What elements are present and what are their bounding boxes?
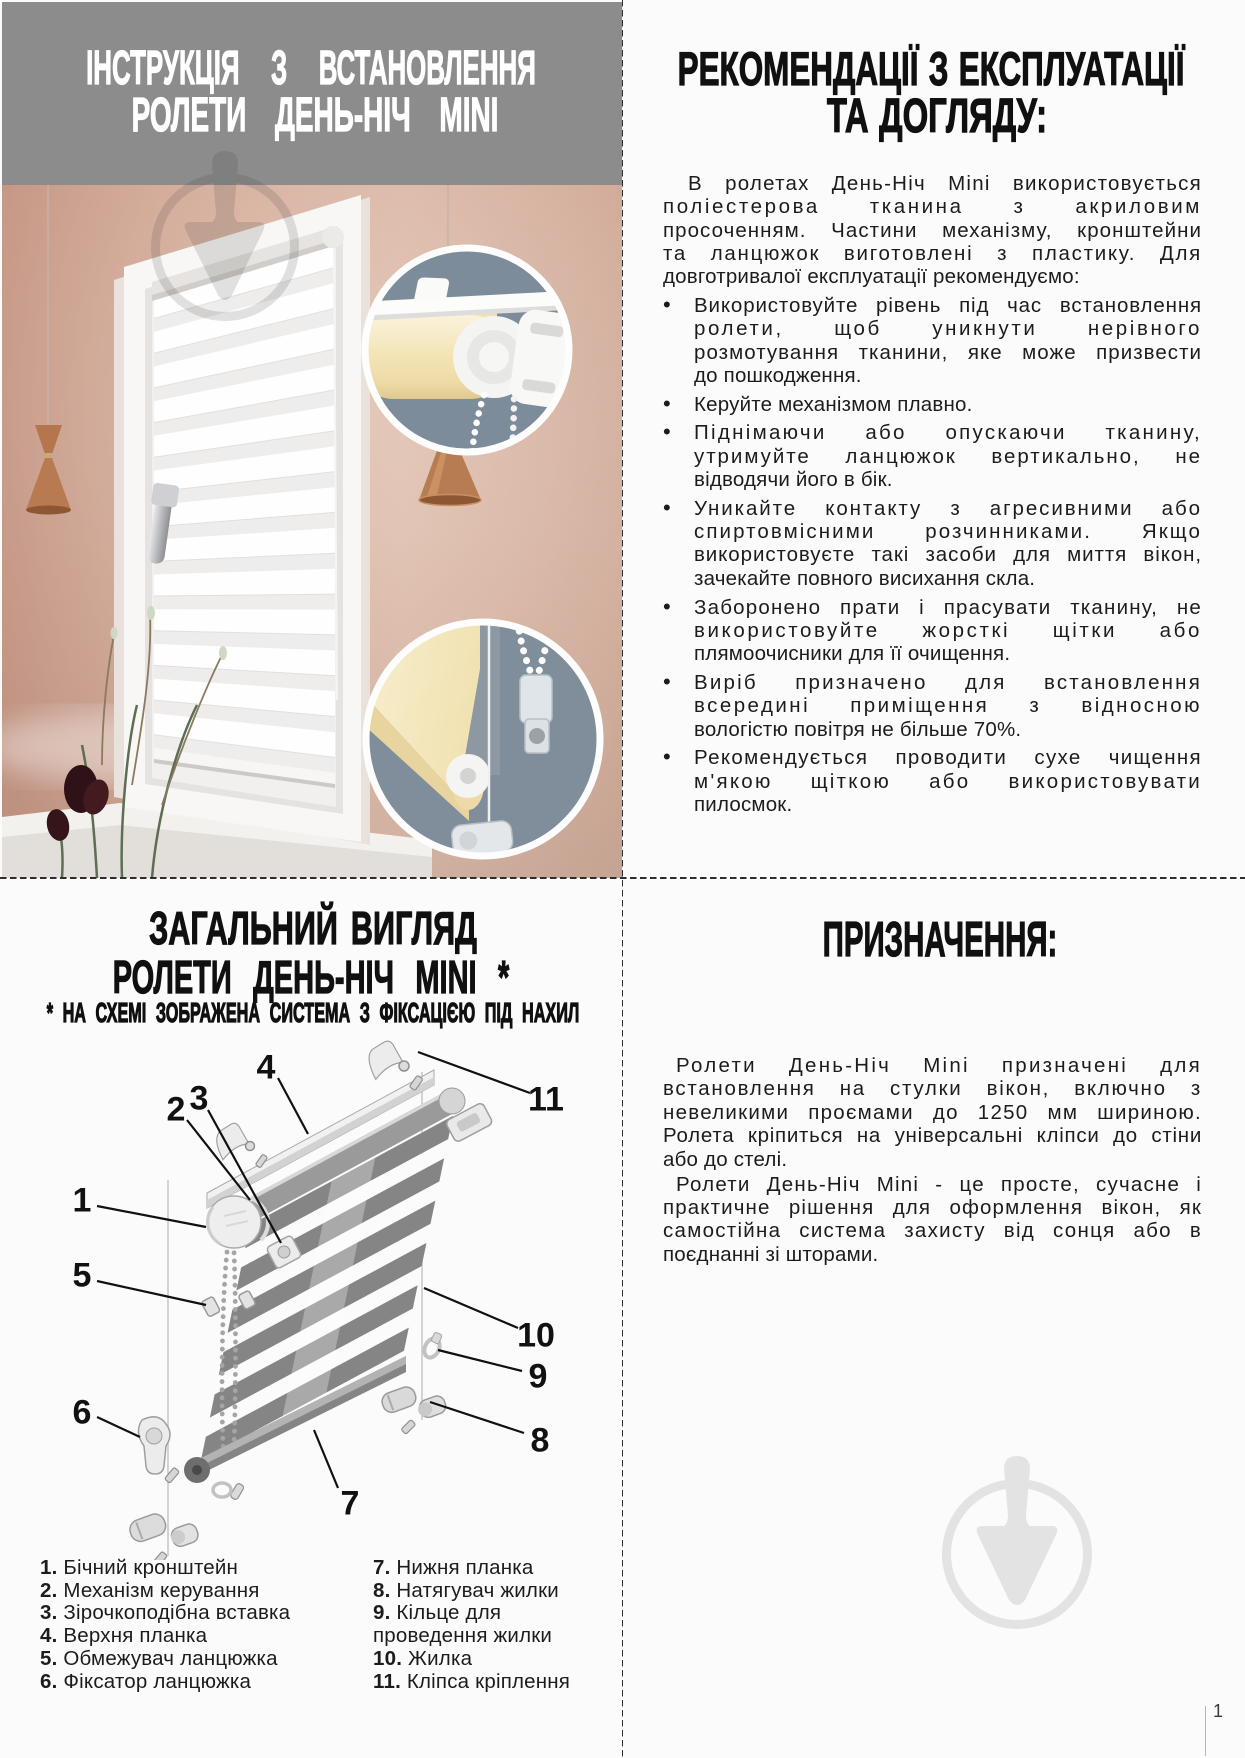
svg-text:9: 9	[529, 1358, 548, 1396]
svg-text:7: 7	[341, 1485, 360, 1523]
svg-text:6: 6	[73, 1394, 92, 1432]
svg-text:5: 5	[73, 1257, 92, 1295]
svg-text:1: 1	[73, 1182, 92, 1220]
svg-text:8: 8	[531, 1422, 550, 1460]
svg-text:4: 4	[257, 1049, 276, 1087]
svg-text:10: 10	[517, 1317, 555, 1355]
svg-text:11: 11	[528, 1081, 564, 1119]
svg-text:2: 2	[167, 1091, 186, 1129]
svg-text:3: 3	[190, 1080, 209, 1118]
